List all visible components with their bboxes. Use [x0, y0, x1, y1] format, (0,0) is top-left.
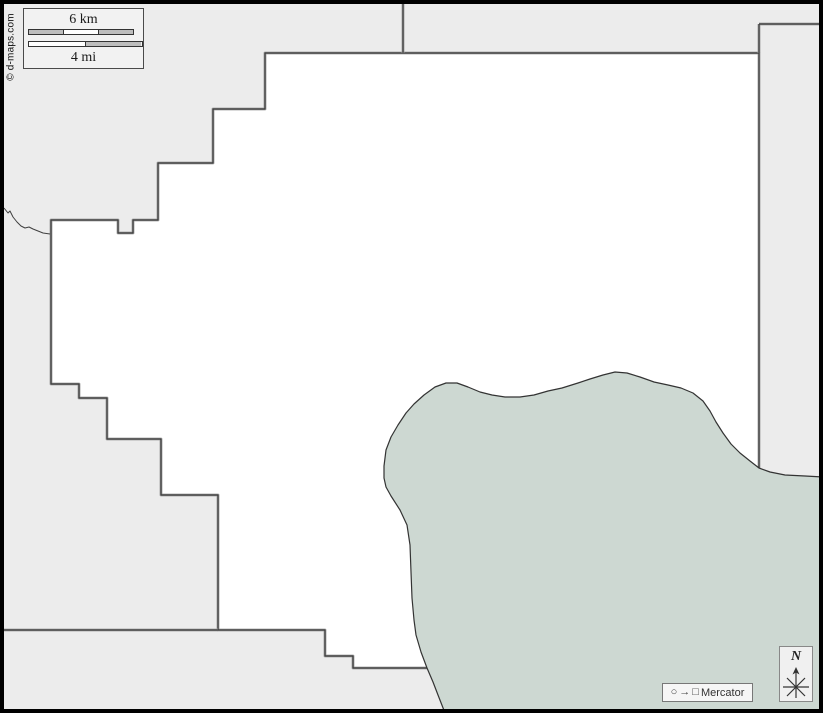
scale-bar-km-segment	[29, 30, 63, 34]
map-canvas: 6 km 4 mi © d-maps.com ○ → □ Mercator N	[0, 0, 823, 713]
arrow-right-icon: →	[679, 687, 690, 698]
scale-bar-mi	[28, 41, 143, 47]
scale-mi-label: 4 mi	[24, 51, 143, 65]
projection-name: Mercator	[701, 687, 744, 699]
scale-bar-mi-segment	[85, 42, 141, 46]
scale-bar-mi-segment	[29, 42, 85, 46]
scale-bar-km-segment	[63, 30, 98, 34]
scale-bar-km	[28, 29, 134, 35]
outline-map-svg	[0, 0, 823, 713]
scale-bar-km-segment	[98, 30, 133, 34]
compass-north-label: N	[791, 649, 801, 665]
scale-bar-panel: 6 km 4 mi	[23, 8, 144, 69]
copyright-text: © d-maps.com	[6, 13, 17, 81]
scale-km-label: 6 km	[24, 13, 143, 27]
projection-label-box: ○ → □ Mercator	[662, 683, 753, 702]
compass-box: N	[779, 646, 813, 702]
flat-square-icon: □	[692, 687, 699, 698]
globe-circle-icon: ○	[671, 687, 678, 698]
compass-rose-icon	[781, 665, 811, 699]
